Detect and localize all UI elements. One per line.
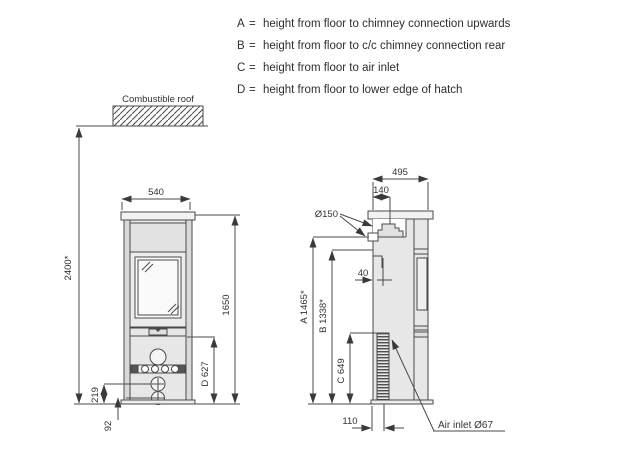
legend-row-d: D=height from floor to lower edge of hat… [237, 79, 510, 101]
air-inlet-label: Air inlet Ø67 [438, 420, 493, 431]
air-control-knob-upper [151, 377, 165, 391]
combustible-roof-label: Combustible roof [122, 94, 194, 105]
side-handle-upper [414, 326, 428, 330]
side-handle-lower [414, 332, 428, 337]
front-base-plate [121, 400, 195, 404]
legend-text-d: height from floor to lower edge of hatch [263, 84, 462, 96]
vent-end-cap-right [178, 365, 185, 373]
side-door-edge [417, 258, 427, 310]
dim-540 [122, 199, 190, 210]
dim-flue-diameter-leaders [340, 214, 372, 236]
side-base-plate [371, 400, 433, 404]
technical-drawing-page: A=height from floor to chimney connectio… [0, 0, 624, 460]
upper-control-knob [150, 349, 166, 365]
dim-c649-label: C 649 [336, 358, 347, 383]
dim-495-label: 495 [392, 167, 408, 178]
front-left-rail [124, 220, 130, 400]
legend-eq-c: = [249, 57, 263, 79]
combustible-roof [76, 106, 208, 126]
dim-140-label: 140 [373, 185, 389, 196]
legend-row-c: C=height from floor to air inlet [237, 57, 510, 79]
legend-eq-b: = [249, 35, 263, 57]
front-upper-panel [130, 223, 186, 252]
dim-1650-label: 1650 [221, 294, 232, 315]
dim-40-label: 40 [358, 268, 369, 279]
legend-key-a: A [237, 13, 249, 35]
chimney-connection-rear [368, 233, 378, 241]
legend-text-c: height from floor to air inlet [263, 62, 399, 74]
legend-row-a: A=height from floor to chimney connectio… [237, 13, 510, 35]
side-top-plate [368, 211, 433, 219]
front-right-rail [186, 220, 192, 400]
dim-219-label: 219 [90, 387, 101, 403]
dim-a1465-label: A 1465* [299, 290, 310, 324]
legend-eq-d: = [249, 79, 263, 101]
legend-row-b: B=height from floor to c/c chimney conne… [237, 35, 510, 57]
legend: A=height from floor to chimney connectio… [237, 13, 510, 101]
legend-key-d: D [237, 79, 249, 101]
roof-hatch-area [113, 106, 203, 126]
legend-text-b: height from floor to c/c chimney connect… [263, 40, 505, 52]
legend-key-b: B [237, 35, 249, 57]
vent-end-cap-left [131, 365, 138, 373]
legend-eq-a: = [249, 13, 263, 35]
dim-92-label: 92 [103, 421, 114, 432]
stove-front-view [74, 106, 240, 405]
dim-b1338-label: B 1338* [318, 299, 329, 333]
dim-2400-label: 2400* [63, 255, 74, 280]
dim-d627-label: D 627 [200, 361, 211, 386]
dim-540-label: 540 [148, 187, 164, 198]
dim-110-label: 110 [342, 416, 357, 427]
vent-band [131, 365, 185, 373]
legend-text-a: height from floor to chimney connection … [263, 18, 510, 30]
dim-110 [352, 404, 404, 431]
legend-key-c: C [237, 57, 249, 79]
dim-flue-diameter-label: Ø150 [315, 209, 338, 220]
air-inlet-duct [377, 333, 389, 400]
front-top-plate [121, 212, 195, 220]
